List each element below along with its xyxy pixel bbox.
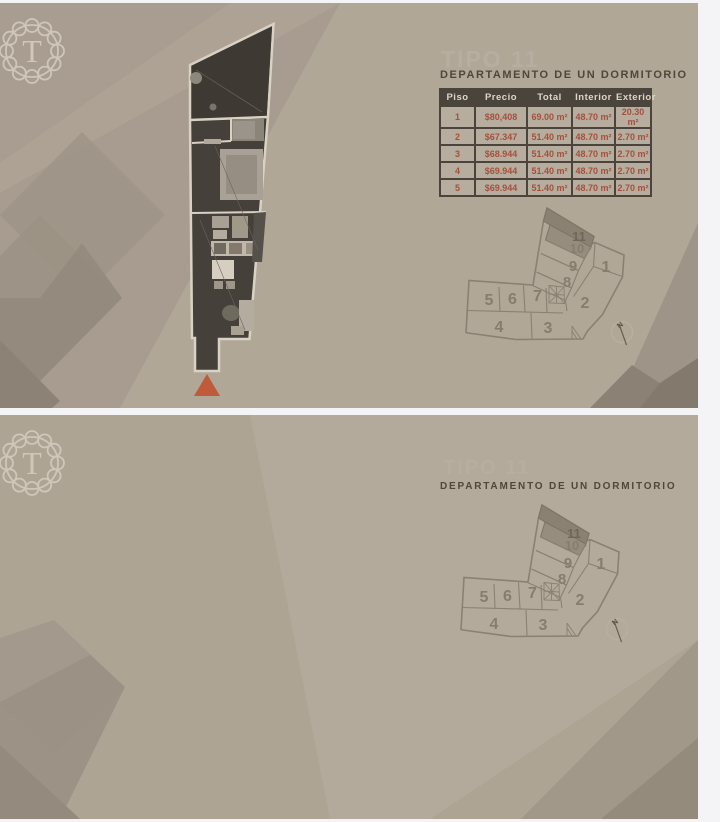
svg-text:5: 5 [485,292,494,309]
svg-text:10: 10 [570,241,584,256]
svg-text:T: T [22,33,42,69]
svg-text:6: 6 [508,291,517,308]
svg-text:2: 2 [581,295,590,312]
svg-text:9: 9 [569,258,577,275]
svg-text:1: 1 [602,259,611,276]
svg-text:T: T [22,445,42,481]
svg-text:7: 7 [533,288,542,305]
svg-text:4: 4 [495,319,504,336]
svg-text:3: 3 [544,320,553,337]
